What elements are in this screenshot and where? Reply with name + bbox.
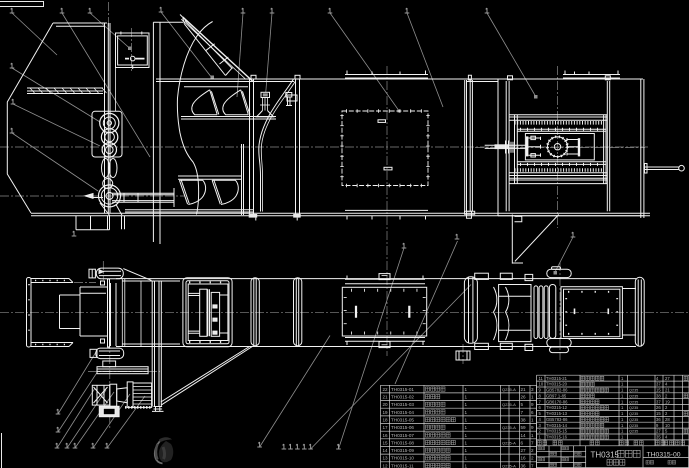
svg-text:5: 5 [521,402,524,407]
svg-text:17: 17 [383,425,389,430]
svg-text:15: 15 [383,440,389,445]
svg-text:10: 10 [539,382,544,387]
svg-text:26: 26 [521,395,527,400]
svg-text:22: 22 [383,387,389,392]
svg-text:2: 2 [531,456,534,461]
svg-text:Q235: Q235 [629,406,638,410]
svg-text:TH0315-05: TH0315-05 [391,418,414,423]
svg-text:Q235-A: Q235-A [502,463,516,468]
svg-text:TH0315-10: TH0315-10 [391,456,414,461]
svg-text:11: 11 [539,376,544,381]
svg-text:1: 1 [465,456,468,461]
svg-text:38: 38 [521,418,527,423]
svg-text:2: 2 [531,448,534,453]
svg-text:1: 1 [465,402,468,407]
svg-text:1: 1 [465,425,468,430]
svg-text:Q235-A: Q235-A [502,425,516,430]
svg-text:14: 14 [383,448,389,453]
svg-text:15: 15 [656,411,661,416]
svg-text:6: 6 [521,440,524,445]
svg-text:TH0315-02: TH0315-02 [391,395,414,400]
svg-text:21: 21 [521,387,527,392]
svg-text:59: 59 [521,425,527,430]
svg-text:1: 1 [465,440,468,445]
svg-text:TH0315: TH0315 [591,451,620,460]
svg-text:15: 15 [656,388,661,393]
svg-text:10: 10 [665,423,670,428]
svg-text:Q235: Q235 [629,412,638,416]
svg-text:1: 1 [465,433,468,438]
svg-text:1: 1 [531,395,534,400]
svg-text:TH0315-11: TH0315-11 [391,463,414,468]
svg-text:Q235: Q235 [629,430,638,434]
svg-text:20: 20 [383,402,389,407]
svg-text:27: 27 [521,448,527,453]
svg-text:TH0315-08: TH0315-08 [391,440,414,445]
svg-text:Q235-A: Q235-A [502,402,516,407]
svg-text:GB97.1-85: GB97.1-85 [546,393,567,398]
svg-text:Q235: Q235 [629,400,638,404]
svg-text:Q235: Q235 [629,394,638,398]
svg-text:14: 14 [521,433,527,438]
svg-text:TH0315-01: TH0315-01 [391,387,414,392]
svg-text:27: 27 [656,429,661,434]
svg-text:GB5782-86: GB5782-86 [546,388,568,393]
svg-text:19: 19 [383,410,389,415]
svg-text:Q235: Q235 [629,418,638,422]
svg-text:21: 21 [665,388,670,393]
svg-text:16: 16 [383,433,389,438]
svg-text:16: 16 [521,456,527,461]
svg-text:1: 1 [465,395,468,400]
svg-text:38: 38 [656,393,661,398]
svg-text:13: 13 [383,456,389,461]
svg-text:9: 9 [531,402,534,407]
svg-text:12: 12 [383,463,389,468]
svg-text:TH0315-14: TH0315-14 [546,423,568,428]
svg-text:36: 36 [656,417,661,422]
svg-text:TH0315-04: TH0315-04 [391,410,414,415]
svg-text:TH0315-12: TH0315-12 [546,405,568,410]
svg-text:7: 7 [531,440,534,445]
svg-text:7: 7 [521,410,524,415]
svg-text:1: 1 [531,433,534,438]
svg-text:TH0315-21: TH0315-21 [546,376,568,381]
svg-text:TH0315-16: TH0315-16 [546,435,568,440]
svg-text:27: 27 [665,376,670,381]
svg-text:3: 3 [531,387,534,392]
svg-text:GB6170-86: GB6170-86 [546,399,568,404]
svg-text:1: 1 [465,410,468,415]
svg-text:19: 19 [665,399,670,404]
svg-text:6: 6 [531,410,534,415]
svg-text:TH0315-03: TH0315-03 [391,402,414,407]
svg-text:1: 1 [465,418,468,423]
svg-text:26: 26 [656,405,661,410]
svg-text:1: 1 [465,448,468,453]
svg-text:37: 37 [656,399,661,404]
svg-text:7: 7 [531,463,534,468]
svg-text:36: 36 [521,463,527,468]
svg-text:Q235-A: Q235-A [502,387,516,392]
svg-text:TH0315-13: TH0315-13 [546,411,568,416]
svg-text:TH0315-06: TH0315-06 [391,425,414,430]
svg-text:35: 35 [656,435,661,440]
svg-text:1: 1 [465,387,468,392]
svg-text:1: 1 [531,418,534,423]
svg-text:37: 37 [656,382,661,387]
svg-text:18: 18 [383,418,389,423]
svg-text:21: 21 [383,395,389,400]
svg-text:TH0315-20: TH0315-20 [546,382,568,387]
svg-text:TH0315-09: TH0315-09 [391,448,414,453]
svg-text:GB5783-86: GB5783-86 [546,417,568,422]
svg-text:Q235-A: Q235-A [502,440,516,445]
svg-text:TH0315-07: TH0315-07 [391,433,414,438]
svg-text:Q235: Q235 [629,424,638,428]
svg-text:9: 9 [531,425,534,430]
svg-text:TH0315-00: TH0315-00 [647,452,681,459]
svg-text:TH0315-15: TH0315-15 [546,429,568,434]
svg-text:28: 28 [665,417,670,422]
svg-text:Q235: Q235 [629,389,638,393]
svg-text:1: 1 [465,463,468,468]
